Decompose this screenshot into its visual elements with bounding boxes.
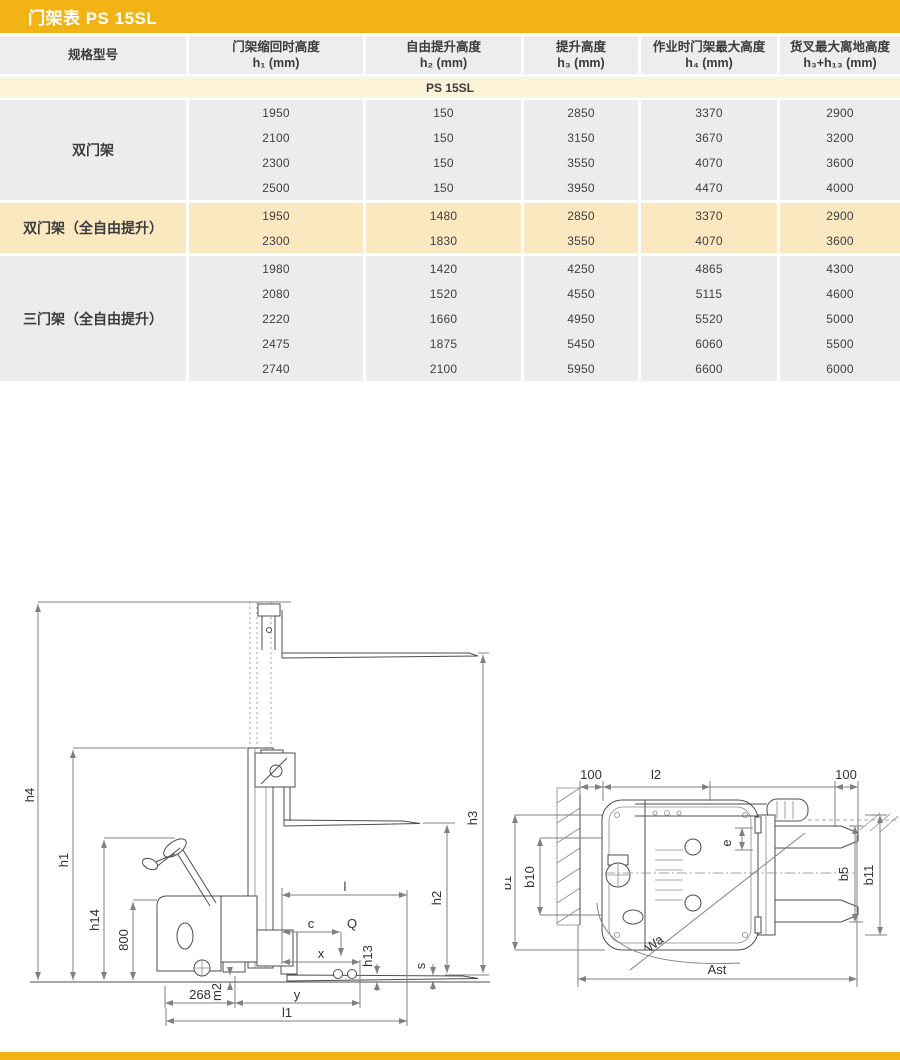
header-h3h13: 货叉最大离地高度h₃+h₁₃ (mm)	[780, 36, 900, 74]
spec-value-cell: 2900	[780, 100, 900, 125]
spec-value-cell: 4070	[641, 228, 777, 253]
spec-value-cell: 2740	[189, 356, 363, 381]
dim-label-b1: b1	[505, 876, 514, 890]
section-label: 双门架（全自由提升）	[0, 203, 186, 253]
spec-value-cell: 3670	[641, 125, 777, 150]
side-view-drawing: h4 h1 h14 800 h3 h2 h13 s l c Q x 268 m2…	[25, 590, 495, 1040]
dim-label-268: 268	[189, 987, 211, 1002]
spec-value-cell: 2100	[366, 356, 521, 381]
dim-label-q: Q	[347, 916, 357, 931]
spec-sheet-page: 门架表 PS 15SL 规格型号 门架缩回时高度h₁ (mm) 自由提升高度h₂…	[0, 0, 900, 1060]
header-h1: 门架缩回时高度h₁ (mm)	[189, 36, 363, 74]
spec-value-cell: 3370	[641, 100, 777, 125]
top-view-drawing: 100 l2 100 b1 b10 e b5 b11 Wa Ast	[505, 755, 900, 990]
spec-value-cell: 1660	[366, 306, 521, 331]
dim-label-b5: b5	[836, 867, 851, 881]
fork-lowered	[281, 932, 478, 981]
dim-label-b11: b11	[861, 865, 876, 886]
header-h2: 自由提升高度h₂ (mm)	[366, 36, 521, 74]
dim-label-l: l	[344, 879, 347, 894]
truck-body	[157, 896, 357, 979]
header-model: 规格型号	[0, 36, 186, 74]
mast-extension-dashed	[250, 602, 271, 748]
spec-value-cell: 2475	[189, 331, 363, 356]
spec-table-body: 双门架1950150285033702900210015031503670320…	[0, 100, 900, 384]
spec-value-cell: 1950	[189, 203, 363, 228]
spec-value-cell: 4550	[524, 281, 638, 306]
spec-value-cell: 5950	[524, 356, 638, 381]
spec-value-cell: 2500	[189, 175, 363, 200]
footer-rule	[0, 1052, 900, 1060]
spec-value-cell: 4865	[641, 256, 777, 281]
spec-value-cell: 4470	[641, 175, 777, 200]
spec-value-cell: 4600	[780, 281, 900, 306]
spec-value-cell: 1830	[366, 228, 521, 253]
dim-label-100-left: 100	[580, 767, 602, 782]
spec-section: 三门架（全自由提升）198014204250486543002080152045…	[0, 256, 900, 381]
spec-value-cell: 5115	[641, 281, 777, 306]
model-subheader-row: PS 15SL	[0, 77, 900, 98]
spec-value-cell: 2300	[189, 228, 363, 253]
fork-free-lift	[284, 820, 420, 826]
spec-value-cell: 6060	[641, 331, 777, 356]
spec-value-cell: 4300	[780, 256, 900, 281]
truck-body-top	[602, 800, 758, 950]
dim-label-h13: h13	[360, 945, 375, 967]
spec-value-cell: 5000	[780, 306, 900, 331]
header-h4: 作业时门架最大高度h₄ (mm)	[641, 36, 777, 74]
spec-value-cell: 1420	[366, 256, 521, 281]
spec-value-cell: 2300	[189, 150, 363, 175]
spec-value-cell: 5500	[780, 331, 900, 356]
dim-label-l1: l1	[282, 1005, 292, 1020]
spec-value-cell: 4950	[524, 306, 638, 331]
spec-value-cell: 6600	[641, 356, 777, 381]
section-label: 双门架	[0, 100, 186, 200]
dim-label-m2: m2	[209, 983, 224, 1001]
fork-raised	[258, 604, 478, 658]
table-header-row: 规格型号 门架缩回时高度h₁ (mm) 自由提升高度h₂ (mm) 提升高度h₃…	[0, 36, 900, 74]
dim-label-h4: h4	[25, 788, 37, 802]
spec-value-cell: 2850	[524, 203, 638, 228]
page-title: 门架表 PS 15SL	[28, 4, 157, 29]
model-name: PS 15SL	[426, 81, 474, 95]
spec-value-cell: 3550	[524, 150, 638, 175]
dim-label-800: 800	[116, 929, 131, 951]
header-h3: 提升高度h₃ (mm)	[524, 36, 638, 74]
spec-value-cell: 150	[366, 125, 521, 150]
spec-value-cell: 1875	[366, 331, 521, 356]
spec-value-cell: 2850	[524, 100, 638, 125]
spec-value-cell: 4070	[641, 150, 777, 175]
spec-value-cell: 3600	[780, 150, 900, 175]
dim-label-c: c	[308, 916, 315, 931]
spec-value-cell: 5450	[524, 331, 638, 356]
spec-value-cell: 3950	[524, 175, 638, 200]
spec-value-cell: 150	[366, 150, 521, 175]
dim-label-x: x	[318, 946, 325, 961]
spec-section: 双门架（全自由提升）195014802850337029002300183035…	[0, 203, 900, 253]
title-bar: 门架表 PS 15SL	[0, 0, 900, 33]
spec-value-cell: 3550	[524, 228, 638, 253]
spec-value-cell: 4000	[780, 175, 900, 200]
wall-left	[557, 788, 580, 925]
spec-value-cell: 1480	[366, 203, 521, 228]
spec-value-cell: 2220	[189, 306, 363, 331]
spec-value-cell: 150	[366, 100, 521, 125]
spec-value-cell: 2080	[189, 281, 363, 306]
spec-value-cell: 1520	[366, 281, 521, 306]
dim-label-h3: h3	[465, 811, 480, 825]
section-label: 三门架（全自由提升）	[0, 256, 186, 381]
spec-value-cell: 3600	[780, 228, 900, 253]
dim-label-e: e	[719, 839, 734, 846]
dim-label-b10: b10	[522, 866, 537, 888]
spec-value-cell: 5520	[641, 306, 777, 331]
dim-label-h1: h1	[56, 853, 71, 867]
spec-value-cell: 6000	[780, 356, 900, 381]
tiller-arm	[141, 835, 216, 906]
spec-value-cell: 3370	[641, 203, 777, 228]
spec-value-cell: 4250	[524, 256, 638, 281]
dim-label-l2: l2	[651, 767, 661, 782]
spec-value-cell: 2100	[189, 125, 363, 150]
spec-section: 双门架1950150285033702900210015031503670320…	[0, 100, 900, 200]
spec-value-cell: 1980	[189, 256, 363, 281]
dim-label-h2: h2	[429, 891, 444, 905]
dim-label-s: s	[413, 962, 428, 969]
spec-value-cell: 150	[366, 175, 521, 200]
spec-value-cell: 3200	[780, 125, 900, 150]
dim-label-y: y	[294, 987, 301, 1002]
dim-label-100-right: 100	[835, 767, 857, 782]
dim-label-h14: h14	[87, 909, 102, 931]
spec-value-cell: 2900	[780, 203, 900, 228]
dim-label-ast: Ast	[708, 962, 727, 977]
spec-value-cell: 3150	[524, 125, 638, 150]
spec-value-cell: 1950	[189, 100, 363, 125]
